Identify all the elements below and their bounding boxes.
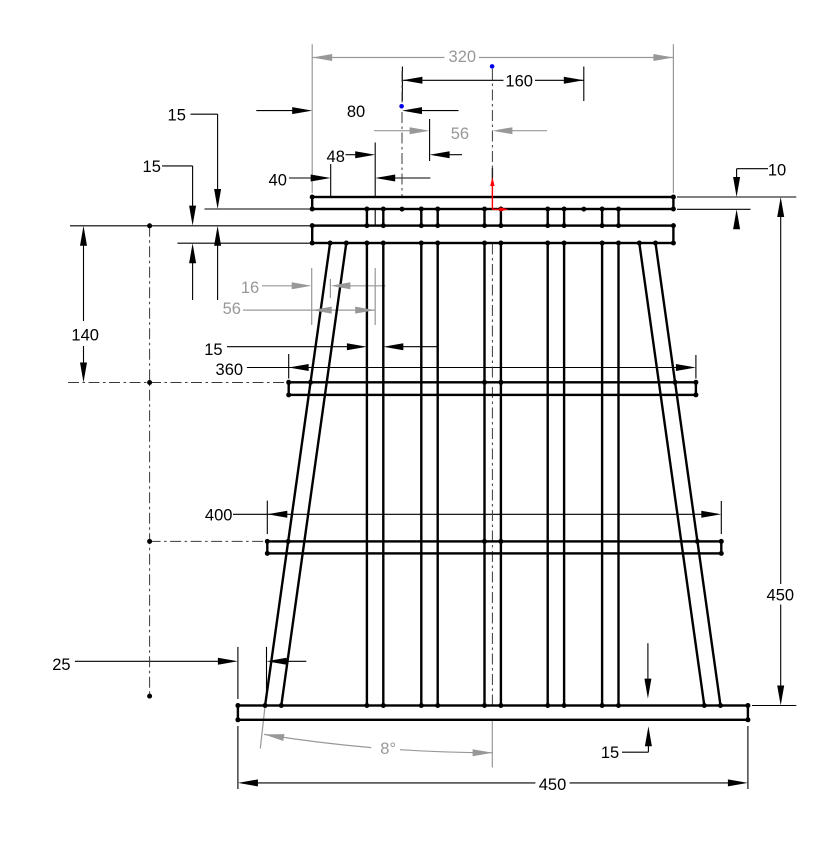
svg-text:360: 360 bbox=[216, 361, 244, 379]
svg-text:320: 320 bbox=[449, 48, 477, 66]
svg-text:400: 400 bbox=[205, 507, 233, 525]
svg-text:25: 25 bbox=[52, 656, 70, 674]
svg-text:15: 15 bbox=[601, 744, 619, 762]
svg-text:15: 15 bbox=[204, 341, 222, 359]
svg-text:48: 48 bbox=[327, 148, 345, 166]
svg-text:10: 10 bbox=[768, 161, 786, 179]
svg-text:8°: 8° bbox=[380, 740, 396, 758]
svg-text:450: 450 bbox=[767, 587, 795, 605]
svg-text:160: 160 bbox=[505, 72, 533, 90]
svg-text:40: 40 bbox=[269, 171, 287, 189]
svg-text:80: 80 bbox=[347, 103, 365, 121]
svg-text:15: 15 bbox=[168, 106, 186, 124]
svg-text:450: 450 bbox=[539, 776, 567, 794]
svg-text:16: 16 bbox=[241, 279, 259, 297]
svg-text:140: 140 bbox=[71, 327, 99, 345]
svg-text:15: 15 bbox=[143, 158, 161, 176]
svg-text:56: 56 bbox=[223, 300, 241, 318]
svg-text:56: 56 bbox=[451, 125, 469, 143]
